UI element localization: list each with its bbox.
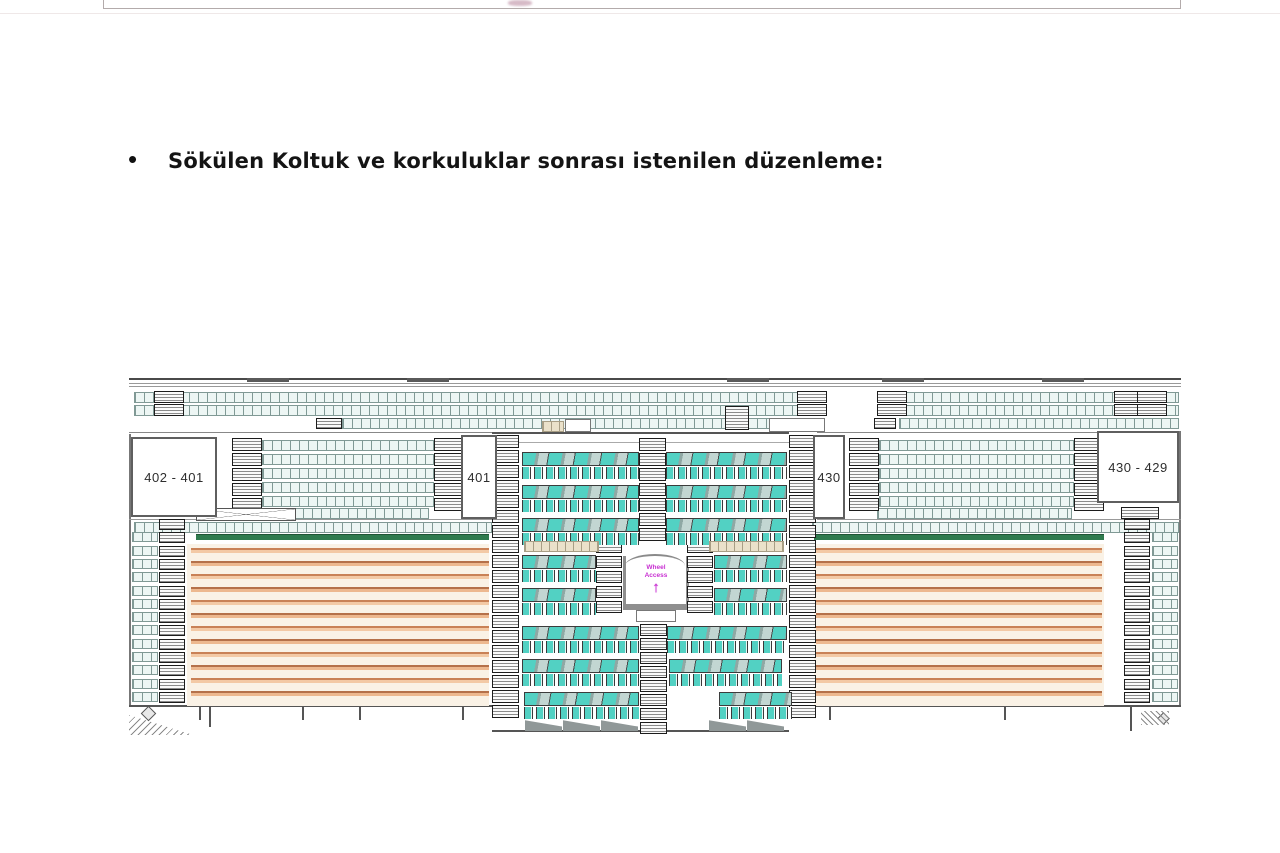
section-label-text: 401 [467, 470, 490, 485]
seat-row [132, 652, 158, 662]
seat-backs [714, 555, 787, 569]
row-stripe [191, 613, 489, 618]
seat-row [879, 454, 1074, 465]
stair-box [849, 498, 879, 511]
row-stripe [816, 691, 1102, 696]
stair-box [640, 708, 667, 720]
line [1004, 707, 1006, 720]
seat-squares [522, 500, 639, 512]
section-label-text: 402 - 401 [144, 470, 203, 485]
teal-seat-row [522, 485, 639, 510]
seat-backs [522, 485, 639, 499]
seat-squares [522, 603, 596, 615]
stair-box [1124, 625, 1150, 636]
row-stripe [191, 691, 489, 696]
ramp [563, 719, 600, 732]
line [829, 707, 831, 720]
vomitory-box [769, 418, 825, 432]
ramp [525, 719, 562, 732]
seat-row [134, 392, 817, 403]
stair-box [1137, 404, 1167, 416]
seat-row [262, 496, 434, 507]
stair-box [1124, 612, 1150, 623]
stair-box [492, 645, 519, 658]
stair-box [877, 404, 907, 416]
seat-row [134, 522, 492, 533]
stair-box [154, 391, 184, 403]
stair-box [434, 453, 464, 466]
stair-box [1124, 586, 1150, 597]
teal-seat-row [667, 626, 787, 651]
stair-box [1124, 519, 1150, 530]
line [407, 378, 449, 382]
stair-box [639, 438, 666, 451]
stair-box [159, 652, 185, 663]
teal-seat-row [522, 518, 639, 543]
beige-row [524, 541, 599, 552]
stair-box [434, 438, 464, 451]
stair-box [789, 510, 816, 523]
stair-box [159, 519, 185, 530]
row-stripe [191, 561, 489, 566]
seat-backs [522, 555, 596, 569]
seat-row [1152, 599, 1178, 609]
stair-box [874, 418, 896, 429]
seat-squares [522, 467, 639, 479]
stair-box [159, 532, 185, 543]
stair-box [159, 599, 185, 610]
seat-row [1152, 692, 1178, 702]
row-stripe [816, 574, 1102, 579]
seat-row [132, 639, 158, 649]
previous-slide-edge [103, 0, 1181, 9]
seat-row [1152, 586, 1178, 596]
row-stripe [191, 678, 489, 683]
stair-box [639, 528, 666, 541]
row-stripe [191, 665, 489, 670]
stair-box [640, 722, 667, 734]
seat-row [1152, 546, 1178, 556]
stair-box [596, 601, 622, 613]
stair-box [1124, 652, 1150, 663]
vomitory-box [565, 419, 591, 432]
teal-seat-row [524, 692, 639, 717]
stair-box [789, 645, 816, 658]
section-label-401: 401 [461, 435, 497, 519]
seat-backs [719, 692, 792, 706]
stair-box [1137, 391, 1167, 403]
seat-backs [522, 588, 596, 602]
bullet-heading: • Sökülen Koltuk ve korkuluklar sonrası … [128, 146, 1128, 176]
green-walkway [814, 534, 1104, 540]
stair-box [789, 630, 816, 643]
vomitory-box [636, 610, 676, 622]
seat-backs [522, 518, 639, 532]
seat-row [879, 482, 1074, 493]
stair-box [789, 690, 816, 703]
row-stripe [191, 600, 489, 605]
row-stripe [191, 639, 489, 644]
line [1130, 707, 1132, 731]
seat-squares [522, 674, 639, 686]
line [129, 432, 492, 433]
stair-box [492, 705, 519, 718]
seat-row [132, 559, 158, 569]
row-stripe [816, 639, 1102, 644]
stair-box [232, 438, 262, 451]
teal-seat-row [666, 485, 787, 510]
stair-box [159, 612, 185, 623]
ground-hatch [1141, 711, 1169, 725]
section-label-text: 430 [817, 470, 840, 485]
teal-seat-row [522, 588, 596, 613]
stair-box [232, 483, 262, 496]
stair-box [492, 690, 519, 703]
teal-seat-row [714, 555, 787, 580]
stair-box [492, 525, 519, 538]
stair-box [596, 571, 622, 583]
seat-row [132, 572, 158, 582]
green-walkway [196, 534, 489, 540]
stair-box [1124, 572, 1150, 583]
seat-row [1152, 652, 1178, 662]
line [302, 707, 304, 720]
seat-squares [714, 570, 787, 582]
stair-box [232, 468, 262, 481]
line [129, 383, 1181, 384]
stair-box [789, 660, 816, 673]
stair-box [492, 555, 519, 568]
seat-row [132, 612, 158, 622]
teal-seat-row [522, 659, 639, 684]
row-stripe [191, 626, 489, 631]
row-stripe [816, 561, 1102, 566]
stair-box [640, 680, 667, 692]
seat-backs [666, 485, 787, 499]
section-label-text: 430 - 429 [1108, 460, 1167, 475]
stair-box [789, 495, 816, 508]
seat-row [877, 508, 1072, 519]
seat-row [1152, 532, 1178, 542]
stair-box [434, 468, 464, 481]
stair-box [316, 418, 342, 429]
stair-box [639, 453, 666, 466]
line [209, 707, 211, 727]
stair-box [849, 483, 879, 496]
line [882, 378, 924, 382]
row-stripe [816, 587, 1102, 592]
seat-row [1152, 559, 1178, 569]
stair-box [492, 540, 519, 553]
stair-box [159, 559, 185, 570]
teal-seat-row [666, 452, 787, 477]
bullet-marker: • [128, 146, 168, 172]
stair-box [159, 665, 185, 676]
stair-box [492, 660, 519, 673]
ramp [747, 719, 784, 732]
seat-row [132, 679, 158, 689]
seat-backs [524, 692, 639, 706]
section-label-402-401: 402 - 401 [131, 437, 217, 517]
row-stripe [816, 678, 1102, 683]
seat-backs [666, 452, 787, 466]
stair-box [877, 391, 907, 403]
section-label-430: 430 [813, 435, 845, 519]
stair-box [492, 570, 519, 583]
line [1042, 378, 1084, 382]
stair-box [725, 406, 749, 430]
stair-box [639, 468, 666, 481]
stair-box [159, 586, 185, 597]
stair-box [159, 572, 185, 583]
beige-row [542, 421, 564, 432]
stair-box [789, 435, 816, 448]
seat-row [1152, 639, 1178, 649]
slide-edge-smudge [508, 0, 532, 6]
row-stripe [816, 626, 1102, 631]
seat-squares [666, 467, 787, 479]
stair-box [596, 586, 622, 598]
stair-box [1124, 546, 1150, 557]
row-stripe [191, 652, 489, 657]
stair-box [687, 601, 713, 613]
seat-squares [524, 707, 639, 719]
seat-row [1152, 612, 1178, 622]
teal-seat-row [714, 588, 787, 613]
seat-row [134, 405, 817, 416]
teal-seat-row [522, 626, 639, 651]
seat-squares [719, 707, 792, 719]
stair-box [492, 630, 519, 643]
row-stripe [191, 574, 489, 579]
seat-squares [669, 674, 782, 686]
stair-box [789, 480, 816, 493]
stair-box [789, 615, 816, 628]
seat-squares [714, 603, 787, 615]
stair-box [797, 391, 827, 403]
line [199, 707, 201, 720]
stair-box [492, 675, 519, 688]
stair-box [797, 404, 827, 416]
seat-row [132, 586, 158, 596]
seat-row [1152, 572, 1178, 582]
seat-row [262, 482, 434, 493]
row-stripe [191, 587, 489, 592]
teal-seat-row [669, 659, 782, 684]
row-stripe [816, 613, 1102, 618]
stair-box [159, 639, 185, 650]
seat-backs [669, 659, 782, 673]
stair-box [159, 692, 185, 703]
teal-seat-row [719, 692, 792, 717]
line [492, 432, 789, 434]
stair-box [849, 468, 879, 481]
line [727, 378, 769, 382]
row-stripe [816, 665, 1102, 670]
stair-box [154, 404, 184, 416]
seat-row [132, 546, 158, 556]
stair-box [640, 652, 667, 664]
stair-box [1124, 559, 1150, 570]
seat-row [879, 468, 1074, 479]
row-stripe [191, 548, 489, 553]
seat-squares [666, 500, 787, 512]
seat-row [132, 625, 158, 635]
stair-box [232, 453, 262, 466]
row-stripe [816, 600, 1102, 605]
stair-box [789, 525, 816, 538]
seat-squares [667, 641, 787, 653]
ground-hatch [129, 715, 193, 735]
seat-row [262, 468, 434, 479]
seat-backs [666, 518, 787, 532]
survey-marker-icon [141, 706, 157, 722]
stair-box [159, 679, 185, 690]
seat-row [899, 418, 1179, 429]
seat-backs [522, 626, 639, 640]
annotation-line1: Wheel [621, 564, 691, 572]
stair-box [159, 546, 185, 557]
seat-backs [714, 588, 787, 602]
stair-box [434, 483, 464, 496]
beige-row [709, 541, 784, 552]
stair-box [639, 513, 666, 526]
seat-row [262, 454, 434, 465]
stair-box [492, 585, 519, 598]
stair-box [789, 465, 816, 478]
divider-line [0, 13, 1280, 14]
seat-backs [667, 626, 787, 640]
stair-box [159, 625, 185, 636]
seat-row [1152, 625, 1178, 635]
stair-box [849, 453, 879, 466]
seat-squares [522, 641, 639, 653]
ramp [601, 719, 638, 732]
row-stripe [816, 548, 1102, 553]
stair-box [789, 705, 816, 718]
stair-box [789, 600, 816, 613]
heading-text: Sökülen Koltuk ve korkuluklar sonrası is… [168, 146, 884, 176]
seat-squares [522, 570, 596, 582]
seat-row [132, 532, 158, 542]
stair-box [849, 438, 879, 451]
stair-box [789, 585, 816, 598]
stair-box [789, 540, 816, 553]
seat-row [879, 496, 1074, 507]
stair-box [640, 694, 667, 706]
seat-row [1152, 679, 1178, 689]
stair-box [639, 483, 666, 496]
stair-box [492, 615, 519, 628]
section-label-430-429: 430 - 429 [1097, 431, 1179, 503]
teal-seat-row [522, 452, 639, 477]
line [1179, 431, 1181, 706]
line [247, 378, 289, 382]
stair-box [1124, 599, 1150, 610]
seat-row [1152, 665, 1178, 675]
teal-seat-row [666, 518, 787, 543]
seat-row [879, 440, 1074, 451]
stair-box [640, 638, 667, 650]
stair-box [639, 498, 666, 511]
stair-box [1124, 679, 1150, 690]
stair-box [640, 666, 667, 678]
stair-box [640, 624, 667, 636]
stair-box [434, 498, 464, 511]
stair-box [1124, 692, 1150, 703]
stair-box [789, 570, 816, 583]
line [462, 707, 464, 720]
access-annotation: Wheel Access ↑ [621, 564, 691, 596]
seat-backs [522, 659, 639, 673]
stair-box [492, 600, 519, 613]
stair-box [1124, 639, 1150, 650]
stair-box [1121, 507, 1159, 519]
seat-backs [522, 452, 639, 466]
line [129, 386, 1181, 387]
seat-row [132, 692, 158, 702]
seat-row [132, 599, 158, 609]
seat-row [132, 665, 158, 675]
seat-row [262, 440, 434, 451]
ramp [709, 719, 746, 732]
stair-box [789, 555, 816, 568]
row-stripe [816, 652, 1102, 657]
teal-seat-row [522, 555, 596, 580]
stair-box [1124, 665, 1150, 676]
stair-box [1124, 532, 1150, 543]
line [359, 707, 361, 720]
stair-box [789, 675, 816, 688]
stadium-plan: 402 - 401 401 430 430 - 429 Wheel Access… [129, 378, 1181, 738]
stair-box [789, 450, 816, 463]
stair-box [596, 556, 622, 568]
up-arrow-icon: ↑ [621, 580, 691, 596]
